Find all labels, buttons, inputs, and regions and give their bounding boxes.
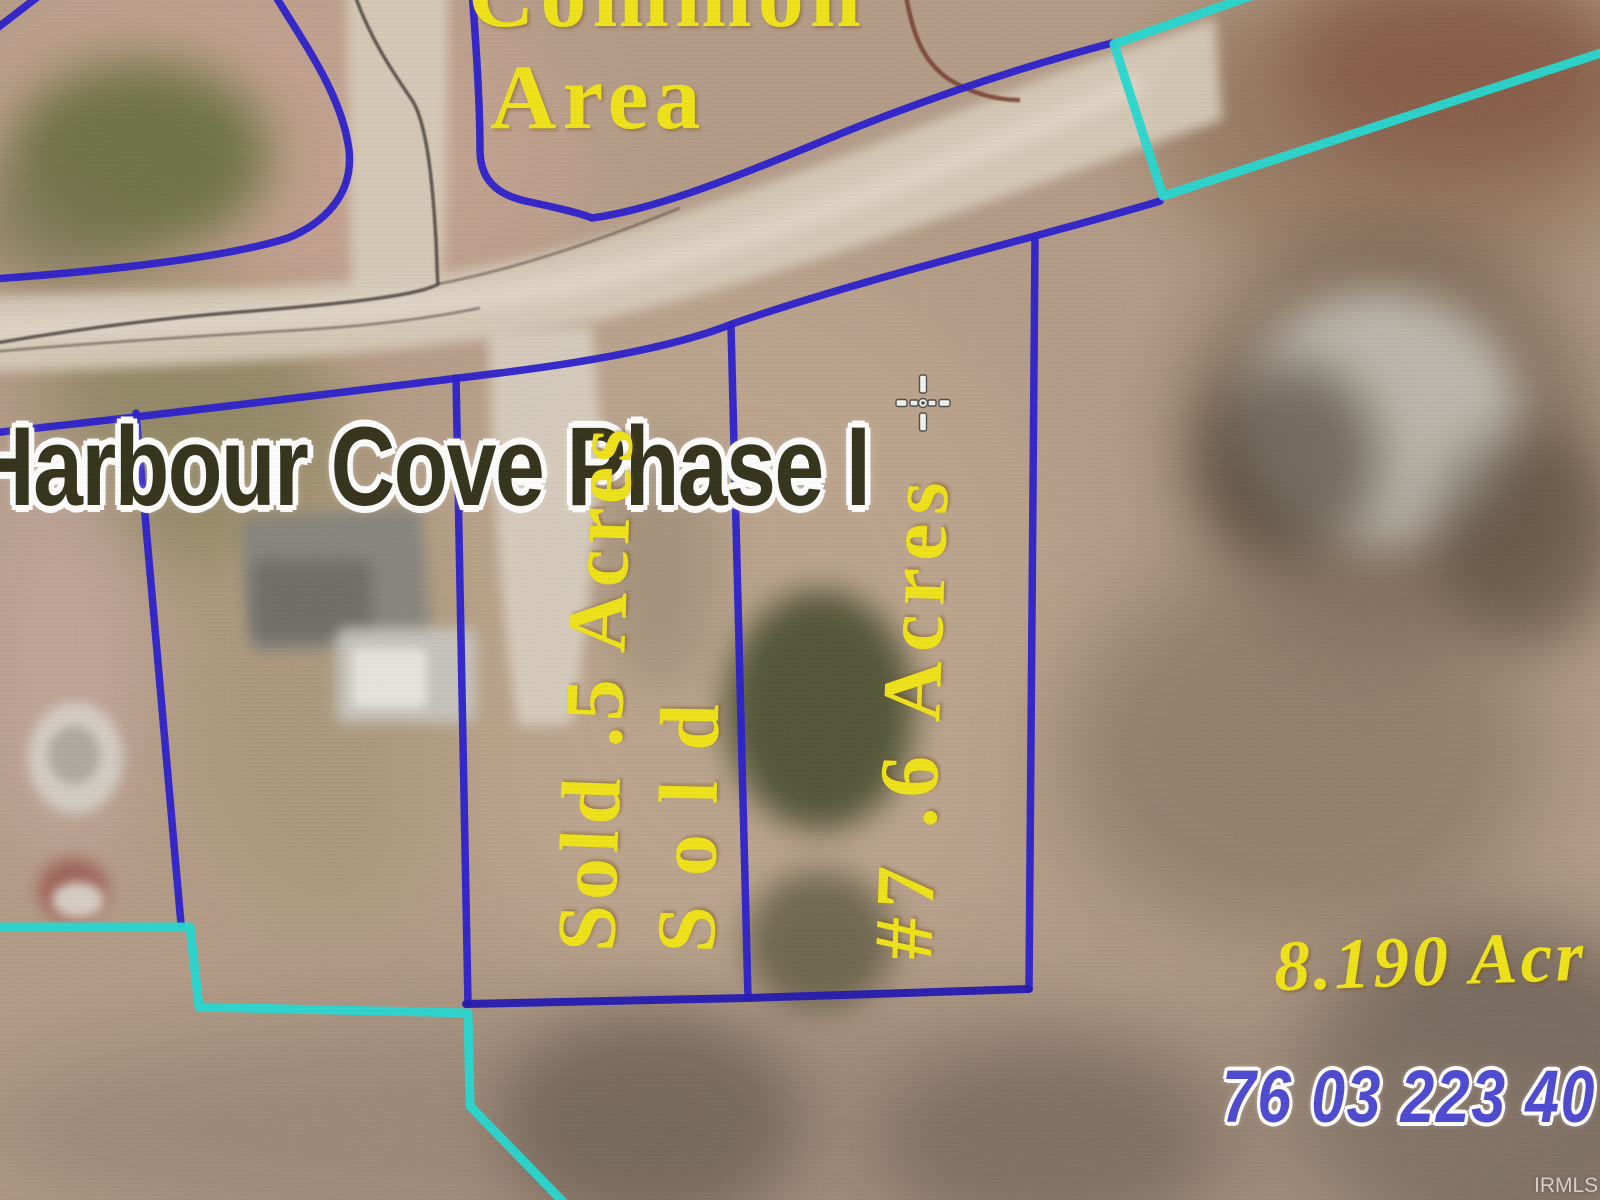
lot-line [731, 326, 748, 998]
aerial-plat-map: Common Area Harbour Cove Phase I Sold .5… [0, 0, 1600, 1200]
lot-line [456, 378, 468, 1004]
lot-line-west [136, 413, 181, 924]
road-branch [346, 0, 448, 302]
cyan-boundary-southwest [0, 927, 567, 1200]
common-area-boundary [0, 0, 350, 279]
crosshair-cursor [896, 375, 950, 431]
lot-line [1029, 240, 1035, 989]
plat-overlay [0, 0, 1600, 1200]
driveway [488, 326, 600, 726]
plat-line [0, 0, 44, 32]
